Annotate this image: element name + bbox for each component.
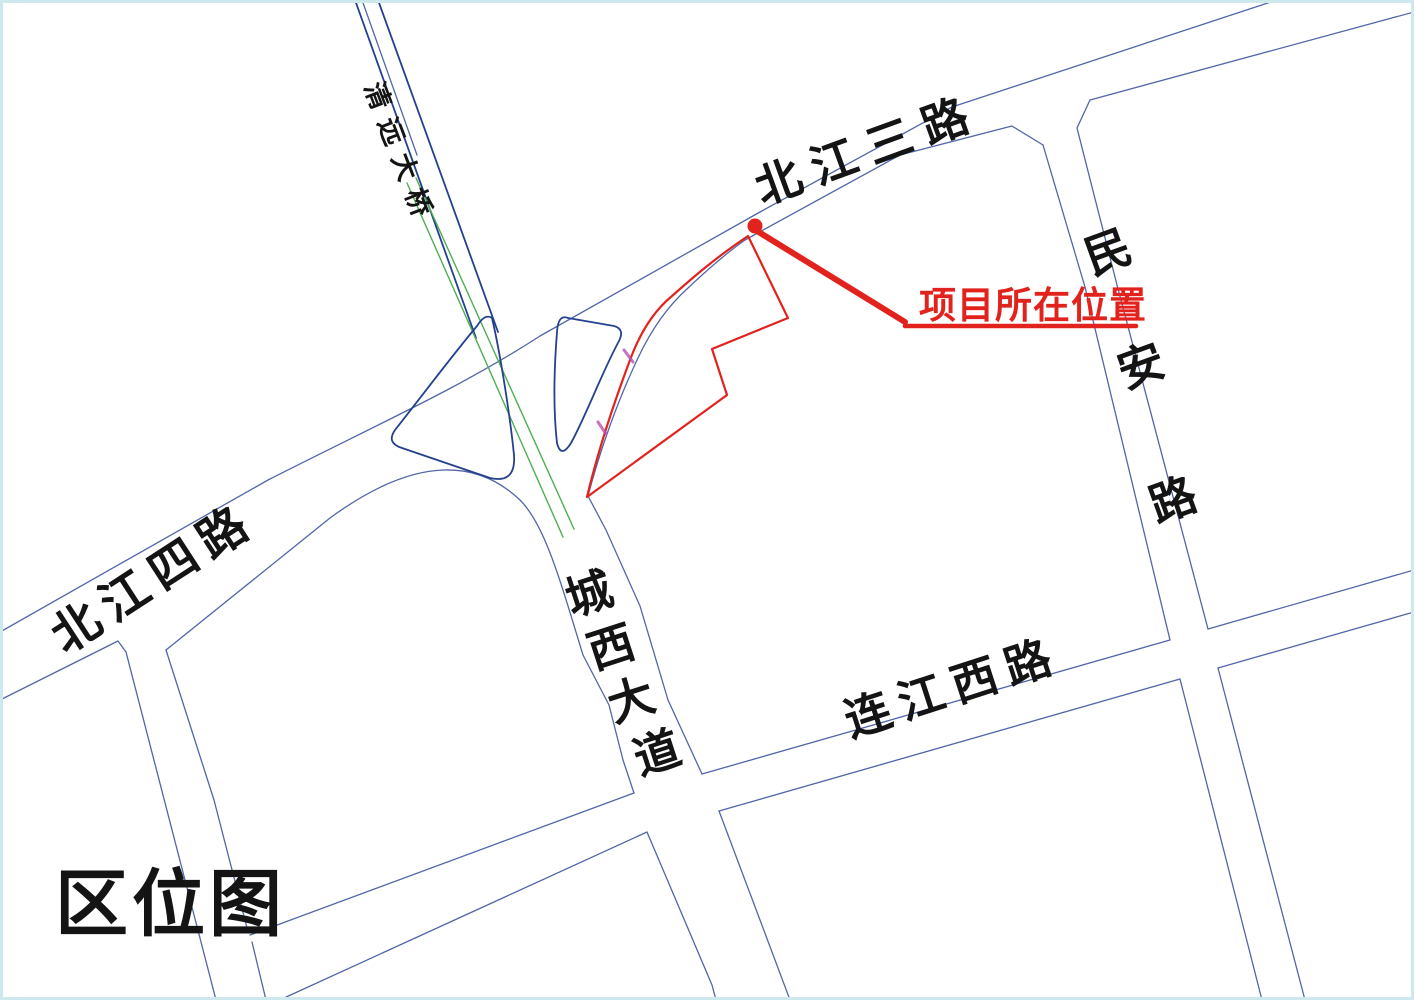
location-map: 清远大桥 北江三路 北江四路 连江西路 民 安 路 城 西 大 道 项目所在位置… [0,0,1414,1000]
project-location-annotation: 项目所在位置 [919,287,1147,324]
project-site-boundary [587,236,788,497]
road-beijiang-edges [0,0,1414,1000]
map-title: 区位图 [55,868,286,941]
traffic-islands [392,317,621,479]
road-network-drawing [0,0,1414,1000]
